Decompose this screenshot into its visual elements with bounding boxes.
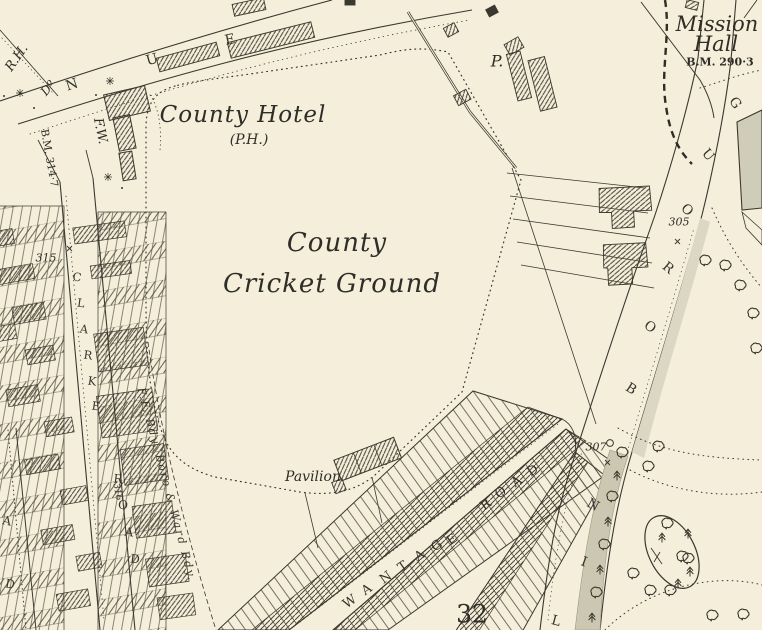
pavilion-label: Pavilion <box>285 469 341 485</box>
gray-building <box>737 110 762 245</box>
clarke-road-letter: D <box>129 551 140 566</box>
clarke-road-letter: A <box>124 525 134 540</box>
county-hotel-building <box>104 86 161 181</box>
clarke-letter: L <box>76 296 86 311</box>
spot-315-label: 315 <box>36 252 57 265</box>
ne-stepped-buildings <box>596 183 653 288</box>
clarke-letter: K <box>87 373 97 388</box>
map-linework <box>0 0 762 630</box>
cricket-ground-label-line2: Cricket Ground <box>223 269 441 299</box>
clarke-letter: C <box>72 269 83 284</box>
mission-hall-label-line2: Hall <box>694 32 738 56</box>
avenue-buildings <box>156 0 355 72</box>
cricket-ground-label-line1: County <box>287 228 387 258</box>
county-hotel-label: County Hotel <box>160 102 327 128</box>
os-map-county-cricket-ground[interactable]: County Hotel (P.H.) County Cricket Groun… <box>0 0 762 630</box>
county-hotel-ph-label: (P.H.) <box>230 132 269 148</box>
spot-307-label: 307 <box>586 441 607 454</box>
footpath-double-line <box>408 12 516 168</box>
benchmark-290-label: B.M. 290·3 <box>686 56 753 69</box>
clarke-letter: R <box>83 347 94 362</box>
parcel-32-label: 32 <box>456 600 488 629</box>
p-abbrev-label: P. <box>491 52 504 71</box>
clarke-road-letter: R <box>113 472 124 487</box>
clarke-road-letter: O <box>117 497 128 512</box>
